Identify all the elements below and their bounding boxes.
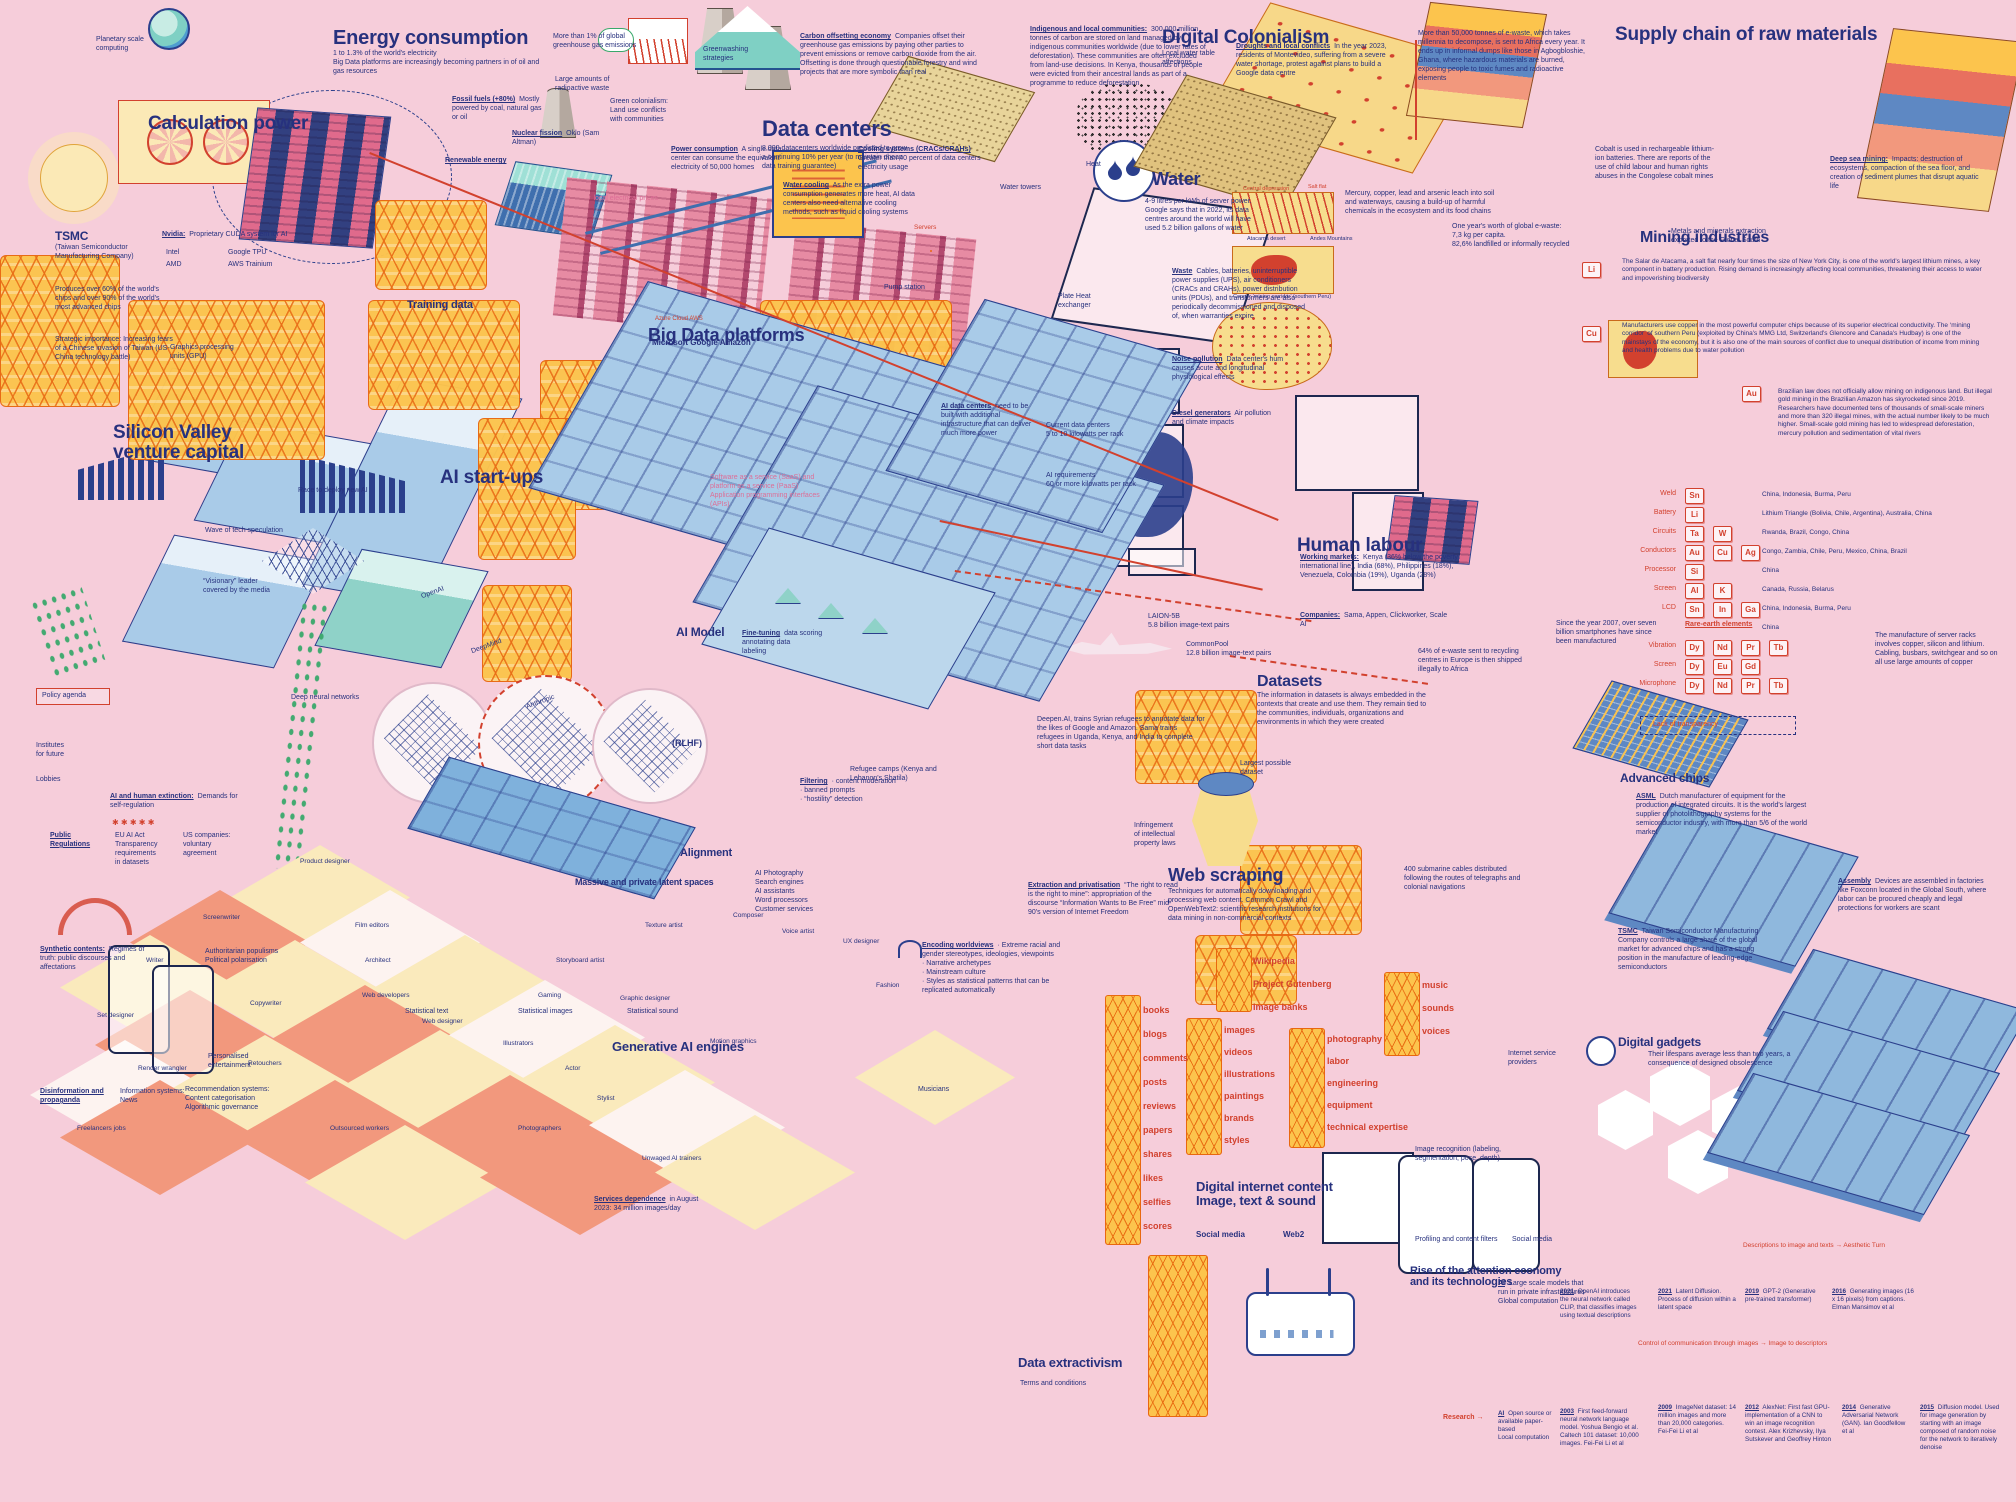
job-label: Web developers	[362, 992, 410, 999]
note-fossil-fuels: Fossil fuels (+80%) Mostly powered by co…	[452, 96, 547, 123]
scraped-audio-items: sounds	[1422, 1003, 1454, 1013]
note-water-towers: Water towers	[1000, 184, 1062, 193]
note-servers: Servers	[914, 224, 954, 232]
section-title-ai-model: AI Model	[676, 626, 724, 638]
phone-mockup	[1398, 1155, 1474, 1274]
timeline-2021-clip: 2021 OpenAI introduces the neural networ…	[1560, 1288, 1640, 1320]
timeline-2021-latent-diffusion: 2021 Latent Diffusion. Process of diffus…	[1658, 1288, 1736, 1312]
section-title-digital-internet-content: Digital internet content Image, text & s…	[1196, 1180, 1366, 1207]
note-water-table: Local water table affections	[1162, 50, 1242, 68]
note-datasets-body: The information in datasets is always em…	[1257, 692, 1429, 728]
element-chip: Tb	[1769, 678, 1788, 694]
job-label: Set designer	[97, 1012, 134, 1019]
map-label-mining-corridor: Copper ‘mining corridor’ (southern Peru)	[1233, 294, 1348, 301]
element-callout-chip: Cu	[1582, 326, 1601, 342]
ewaste-connector-line	[1415, 40, 1417, 140]
note-water-cooling: Water cooling As the extra power consump…	[783, 182, 921, 218]
note-policy-agenda: Policy agenda	[36, 688, 110, 705]
note-research-arrow: Research →	[1443, 1414, 1498, 1423]
section-title-data-centers: Data centers	[762, 118, 892, 141]
note-nuclear-fission: Nuclear fission Oklo (Sam Altman)	[512, 130, 607, 148]
job-label: Render wrangler	[138, 1065, 187, 1072]
note-rlhf: (RLHF)	[672, 738, 722, 750]
content-cube-column	[1384, 972, 1420, 1056]
label-statistical-images: Statistical images	[518, 1008, 600, 1017]
label-statistical-sound: Statistical sound	[627, 1008, 705, 1017]
section-title-data-extractivism: Data extractivism	[1018, 1356, 1122, 1370]
note-mercury: Mercury, copper, lead and arsenic leach …	[1345, 190, 1500, 217]
note-ip-infringement: Infringement of intellectual property la…	[1134, 822, 1216, 849]
scraped-audio-items: voices	[1422, 1026, 1450, 1036]
element-chip: In	[1713, 602, 1732, 618]
note-pump-station: Pump station	[884, 284, 944, 293]
note-radioactive: Large amounts of radioactive waste	[555, 76, 660, 94]
element-chip: Dy	[1685, 659, 1704, 675]
note-intel: Intel	[166, 249, 206, 258]
element-chip: Ga	[1741, 602, 1760, 618]
timeline-2003-bengio: 2003 First feed-forward neural network l…	[1560, 1408, 1642, 1448]
element-chip: Nd	[1713, 640, 1732, 656]
label-statistical-text: Statistical text	[405, 1008, 477, 1017]
training-data-cubes	[930, 250, 932, 252]
element-chip: Ta	[1685, 526, 1704, 542]
training-data-cubes	[368, 300, 520, 410]
training-data-cubes	[375, 200, 487, 290]
element-countries: Canada, Russia, Belarus	[1762, 586, 1997, 593]
note-commonpool: CommonPool 12.8 billion image-text pairs	[1186, 641, 1311, 659]
scraped-resource-items: technical expertise	[1327, 1122, 1408, 1132]
note-bdp-clouds: Azure Cloud AWS	[655, 316, 815, 324]
sun-worker-icon	[40, 144, 108, 212]
element-callout-chip: Li	[1582, 262, 1601, 278]
element-chip: Cu	[1713, 545, 1732, 561]
job-label: Screenwriter	[203, 914, 240, 921]
scraped-media-items: brands	[1224, 1113, 1254, 1123]
element-chip: Sn	[1685, 602, 1704, 618]
shark-illustration	[1062, 630, 1172, 664]
job-label: Product designer	[300, 858, 350, 865]
note-current-dc-kw: Current data centers 5 to 10 kilowatts p…	[1046, 422, 1154, 440]
rare-earth-label: Rare-earth elements	[1685, 621, 1752, 628]
note-disinformation: Disinformation and propaganda	[40, 1088, 120, 1106]
job-label: Graphic designer	[620, 995, 670, 1002]
scraped-text-items: papers	[1143, 1125, 1173, 1135]
note-wave-speculation: Wave of tech speculation	[205, 527, 330, 536]
job-label: Fashion	[876, 982, 899, 989]
scraped-source-items: Project Gutenberg	[1253, 979, 1332, 989]
job-label: Writer	[146, 957, 163, 964]
scraped-text-items: likes	[1143, 1173, 1163, 1183]
note-ai-services: AI Photography Search engines AI assista…	[755, 870, 855, 915]
element-countries: Rwanda, Brazil, Congo, China	[1762, 529, 1997, 536]
note-tsmc-right: TSMC Taiwan Semiconductor Manufacturing …	[1618, 928, 1776, 973]
note-deepen-ai: Deepen.AI, trains Syrian refugees to ann…	[1037, 716, 1205, 752]
element-chip: Tb	[1769, 640, 1788, 656]
note-renewable-energy: Renewable energy	[445, 157, 525, 166]
element-part-label: LCD	[1594, 604, 1676, 611]
section-title-alignment: Alignment	[680, 848, 732, 859]
note-gpu: Graphics processing units (GPU)	[170, 344, 280, 362]
label-social-media: Social media	[1196, 1230, 1258, 1240]
note-gadget-lifespans: Their lifespans average less than two ye…	[1648, 1051, 1826, 1069]
section-title-energy-consumption: Energy consumption	[333, 28, 528, 49]
job-label: Architect	[365, 957, 391, 964]
note-encoding-worldviews: Encoding worldviews · Extreme racial and…	[922, 942, 1062, 996]
job-label: Outsourced workers	[330, 1125, 389, 1132]
note-tsmc-chips: Produces over 60% of the world's chips a…	[55, 286, 170, 313]
element-chip: W	[1713, 526, 1732, 542]
note-extraction-privatisation: Extraction and privatisation “The right …	[1028, 882, 1180, 918]
exploded-monitor-sketch	[1295, 395, 1419, 491]
job-label: Unwaged AI trainers	[642, 1155, 701, 1162]
element-chip: Eu	[1713, 659, 1732, 675]
timeline-2019-gpt2: 2019 GPT-2 (Generative pre-trained trans…	[1745, 1288, 1821, 1304]
note-lithium: The Salar de Atacama, a salt flat nearly…	[1622, 258, 1990, 283]
scraped-audio-items: music	[1422, 980, 1448, 990]
section-title-latent-spaces: Massive and private latent spaces	[575, 878, 765, 887]
note-authoritarian: Authoritarian populisms Political polari…	[205, 948, 303, 966]
job-label: Photographers	[518, 1125, 561, 1132]
note-visionary-leader: “Visionary” leader covered by the media	[203, 578, 303, 596]
scraped-resource-items: engineering	[1327, 1078, 1378, 1088]
note-deep-neural-networks: Deep neural networks	[291, 694, 396, 703]
job-label: Copywriter	[250, 1000, 282, 1007]
element-chip: Sn	[1685, 488, 1704, 504]
note-ewaste-recycling: 64% of e-waste sent to recycling centres…	[1418, 648, 1540, 675]
note-deep-sea-mining: Deep sea mining: Impacts: destruction of…	[1830, 156, 1985, 192]
scraped-resource-items: photography	[1327, 1034, 1382, 1044]
element-chip: Pr	[1741, 678, 1760, 694]
note-ai-kw: AI requirements 60 or more kilowatts per…	[1046, 472, 1158, 490]
element-chip: Nd	[1713, 678, 1732, 694]
note-information-systems: Information systems: News	[120, 1088, 195, 1106]
timeline-2012-alexnet: 2012 AlexNet: First fast GPU-implementat…	[1745, 1404, 1831, 1444]
note-largest-dataset: Largest possible dataset	[1240, 760, 1320, 778]
note-race-to-deploy: Race to deploy new AI	[298, 487, 408, 496]
content-cube-column	[1289, 1028, 1325, 1148]
element-part-label: Battery	[1594, 509, 1676, 516]
extractivism-cube-column	[1148, 1255, 1208, 1417]
phone-mockup	[1472, 1158, 1540, 1272]
note-social-media-right: Social media	[1512, 1236, 1574, 1245]
note-cooling-systems: Cooling systems (CRACs/CRAHs) Greater th…	[858, 146, 988, 173]
note-heat: Heat	[1086, 161, 1116, 170]
element-part-label: Weld	[1594, 490, 1676, 497]
element-part-label: Circuits	[1594, 528, 1676, 535]
note-carbon-offsetting: Carbon offsetting economy Companies offs…	[800, 33, 980, 78]
element-part-label: Processor	[1594, 566, 1676, 573]
musician-stage-tile	[855, 1030, 1015, 1125]
note-droughts: Droughts and local conflicts In the year…	[1236, 43, 1391, 79]
note-planetary-scale-computing: Planetary scale computing	[96, 36, 178, 54]
note-electrical-prices: ↑ local electrical prices	[588, 195, 683, 204]
timeline-2014-gan: 2014 Generative Adversarial Network (GAN…	[1842, 1404, 1912, 1436]
section-title-advanced-chips: Advanced chips	[1620, 772, 1709, 784]
note-lobbies: Lobbies	[36, 776, 86, 785]
note-power-consumption: Power consumption A single data center c…	[671, 146, 783, 173]
note-terms-conditions: Terms and conditions	[1020, 1380, 1115, 1389]
scraped-text-items: blogs	[1143, 1029, 1167, 1039]
scraped-resource-items: labor	[1327, 1056, 1349, 1066]
clock-icon	[1586, 1036, 1616, 1066]
note-public-regulations: Public Regulations	[50, 832, 110, 850]
note-gold: Brazilian law does not officially allow …	[1778, 388, 1993, 438]
element-countries: Congo, Zambia, Chile, Peru, Mexico, Chin…	[1762, 548, 1997, 555]
job-label: Retouchers	[248, 1060, 282, 1067]
regulation-arc-icon	[58, 898, 132, 935]
phone-mockup	[152, 965, 214, 1074]
content-cube-column	[1216, 948, 1252, 1012]
element-chip: K	[1713, 583, 1732, 599]
section-title-ai-startups: AI start-ups	[440, 468, 543, 488]
section-title-human-labour: Human labour	[1297, 536, 1422, 556]
timeline-ai-open-source: AI Open source or available paper-based …	[1498, 1410, 1556, 1442]
section-title-calculation-power: Calculation power	[148, 114, 308, 134]
note-asml: ASML Dutch manufacturer of equipment for…	[1636, 793, 1808, 838]
scraped-media-items: styles	[1224, 1135, 1250, 1145]
tent-icon	[818, 603, 844, 618]
note-copper: Manufacturers use copper in the most pow…	[1622, 322, 1990, 355]
scraped-media-items: paintings	[1224, 1091, 1264, 1101]
scraped-text-items: scores	[1143, 1221, 1172, 1231]
timeline-2009-imagenet: 2009 ImageNet dataset: 14 million images…	[1658, 1404, 1736, 1436]
note-cobalt: Cobalt is used in rechargeable lithium-i…	[1595, 146, 1717, 182]
element-part-label: Screen	[1594, 585, 1676, 592]
element-part-label: Microphone	[1594, 680, 1676, 687]
label-web2: Web2	[1283, 1230, 1323, 1240]
element-chip: Dy	[1685, 678, 1704, 694]
gadget-podium-cube	[1598, 1090, 1653, 1150]
map-label-andes: Andes Mountains	[1310, 236, 1372, 243]
note-labour-companies: Companies: Sama, Appen, Clickworker, Sca…	[1300, 612, 1450, 630]
note-ai-human-extinction: AI and human extinction: Demands for sel…	[110, 793, 240, 811]
note-saas: Software as a service (SaaS) and platfor…	[710, 474, 832, 510]
timeline-2016-captions: 2016 Generating images (16 x 16 pixels) …	[1832, 1288, 1914, 1312]
note-services-dependence: Services dependence in August 2023: 34 m…	[594, 1196, 706, 1214]
element-part-label: Screen	[1594, 661, 1676, 668]
job-label: Motion graphics	[710, 1038, 757, 1045]
job-label: Stylist	[597, 1095, 615, 1102]
content-cube-column	[1105, 995, 1141, 1245]
job-label: Web designer	[422, 1018, 463, 1025]
note-lack-of-transparency: Lack of transparency	[1640, 716, 1796, 735]
scraped-resource-items: equipment	[1327, 1100, 1373, 1110]
note-institutes-future: Institutes for future	[36, 742, 106, 760]
job-label: Illustrators	[503, 1040, 533, 1047]
scraped-text-items: comments	[1143, 1053, 1188, 1063]
note-plate-heat-exchanger: Plate Heat exchanger	[1058, 293, 1120, 311]
content-cube-column	[1186, 1018, 1222, 1155]
tent-icon	[862, 618, 888, 633]
job-label: Voice artist	[782, 928, 814, 935]
element-countries: China, Indonesia, Burma, Peru	[1762, 491, 1997, 498]
note-refugee-camps: Refugee camps (Kenya and Lebanon's Shati…	[850, 766, 942, 784]
note-eu-ai-act: EU AI Act Transparency requirements in d…	[115, 832, 185, 868]
note-google-tpu: Google TPU	[228, 249, 298, 258]
map-label-salt-flat: Salt flat	[1308, 184, 1342, 191]
element-chip: Gd	[1741, 659, 1760, 675]
note-web-scraping-body: Techniques for automatically downloading…	[1168, 888, 1326, 924]
note-green-colonialism: Green colonialism: Land use conflicts wi…	[610, 98, 705, 125]
element-chip: Dy	[1685, 640, 1704, 656]
note-diesel-generators: Diesel generators Air pollution and clim…	[1172, 410, 1277, 428]
label-musicians: Musicians	[918, 1086, 978, 1095]
map-label-atacama: Atacama desert	[1247, 236, 1307, 243]
scraped-text-items: posts	[1143, 1077, 1167, 1087]
element-chip: Si	[1685, 564, 1704, 580]
section-title-water: Water	[1152, 170, 1200, 189]
element-countries: China	[1762, 624, 1997, 631]
note-image-descriptors: Control of communication through images …	[1638, 1340, 1848, 1348]
note-nvidia: Nvidia: Proprietary CUDA system for AI	[162, 231, 322, 240]
scraped-text-items: books	[1143, 1005, 1170, 1015]
gadget-podium-cube	[1650, 1060, 1710, 1126]
job-label: Gaming	[538, 992, 561, 999]
wifi-router-illustration	[1246, 1292, 1355, 1356]
element-countries: Lithium Triangle (Bolivia, Chile, Argent…	[1762, 510, 1997, 517]
note-greenwashing: Greenwashing strategies	[703, 46, 773, 64]
job-label: Freelancers jobs	[77, 1125, 126, 1132]
note-bdp-companies: Microsoft Google Amazon	[652, 338, 842, 348]
note-extinction-asterisks: ✱ ✱ ✱ ✱ ✱	[112, 818, 182, 828]
infographic-poster: Energy consumptionCalculation powerData …	[0, 0, 2016, 1502]
money-bills	[28, 584, 107, 682]
section-title-silicon-valley: Silicon Valley venture capital	[113, 423, 303, 463]
note-profiling: Profiling and content filters	[1415, 1236, 1507, 1245]
job-label: Texture artist	[645, 922, 683, 929]
note-ewaste-africa: More than 50,000 tonnes of e-waste, whic…	[1418, 30, 1593, 84]
note-metals-export: Metals and minerals extraction exported …	[1671, 228, 1806, 246]
scraped-media-items: illustrations	[1224, 1069, 1275, 1079]
section-title-supply-chain: Supply chain of raw materials	[1615, 25, 1895, 45]
note-working-markets: Working markets: Kenya (36% below the po…	[1300, 554, 1465, 581]
note-isp: Internet service providers	[1508, 1050, 1590, 1068]
note-aesthetic-turn: Descriptions to image and texts → Aesthe…	[1743, 1242, 1888, 1250]
note-laion: LAION-5B 5.8 billion image-text pairs	[1148, 613, 1260, 631]
element-countries: China, Indonesia, Burma, Peru	[1762, 605, 1997, 612]
note-synthetic-contents: Synthetic contents: Regimes of truth: pu…	[40, 946, 148, 973]
note-noise-pollution: Noise pollution Data center's hum causes…	[1172, 356, 1284, 383]
element-callout-chip: Au	[1742, 386, 1761, 402]
scraped-source-items: Image banks	[1253, 1002, 1308, 1012]
note-amd: AMD	[166, 261, 206, 270]
element-chip: Pr	[1741, 640, 1760, 656]
element-part-label: Vibration	[1594, 642, 1676, 649]
headphones-icon	[898, 940, 922, 958]
note-recommendation: Recommendation systems: Content categori…	[185, 1086, 285, 1113]
scraped-media-items: images	[1224, 1025, 1255, 1035]
element-chip: Al	[1685, 583, 1704, 599]
note-submarine-cables: 400 submarine cables distributed followi…	[1404, 866, 1526, 893]
note-ewaste-per-capita: One year's worth of global e-waste: 7,3 …	[1452, 223, 1622, 250]
note-image-recognition: Image recognition (labeling, segmentatio…	[1415, 1146, 1537, 1164]
section-title-digital-gadgets: Digital gadgets	[1618, 1036, 1701, 1048]
label-training-data: Training data	[407, 300, 473, 311]
element-chip: Au	[1685, 545, 1704, 561]
note-tsmc-fullname: (Taiwan Semiconductor Manufacturing Comp…	[55, 244, 165, 262]
section-title-tsmc: TSMC	[55, 230, 88, 242]
timeline-2015-diffusion: 2015 Diffusion model. Used for image gen…	[1920, 1404, 2002, 1452]
section-title-datasets: Datasets	[1257, 674, 1322, 691]
note-us-companies: US companies: voluntary agreement	[183, 832, 255, 859]
scraped-media-items: videos	[1224, 1047, 1253, 1057]
job-label: Composer	[733, 912, 763, 919]
note-fine-tuning: Fine-tuning data scoring annotating data…	[742, 630, 837, 657]
note-ghg: More than 1% of global greenhouse gas em…	[553, 33, 668, 51]
scraped-source-items: Wikipedia	[1253, 956, 1295, 966]
note-aws-trainium: AWS Trainium	[228, 261, 308, 270]
job-label: Storyboard artist	[556, 957, 604, 964]
note-tsmc-strategic: Strategic importance: Increasing fears o…	[55, 336, 173, 363]
note-water-litres: 4-9 litres per kWh of server power. Goog…	[1145, 198, 1263, 234]
element-part-label: Conductors	[1594, 547, 1676, 554]
element-chip: Ag	[1741, 545, 1760, 561]
job-label: Actor	[565, 1065, 580, 1072]
note-energy-subtitle: 1 to 1.3% of the world's electricity Big…	[333, 50, 548, 77]
scraped-text-items: selfies	[1143, 1197, 1171, 1207]
job-label: UX designer	[843, 938, 879, 945]
map-label-central-depression: Central depression	[1243, 186, 1305, 193]
scraped-text-items: shares	[1143, 1149, 1172, 1159]
element-countries: China	[1762, 567, 1997, 574]
section-title-web-scraping: Web scraping	[1168, 866, 1283, 885]
note-server-racks-copper: The manufacture of server racks involves…	[1875, 632, 2000, 668]
element-chip: Li	[1685, 507, 1704, 523]
job-label: Film editors	[355, 922, 389, 929]
scraped-text-items: reviews	[1143, 1101, 1176, 1111]
note-assembly: Assembly Devices are assembled in factor…	[1838, 878, 1990, 914]
tent-icon	[775, 588, 801, 603]
training-data-cubes	[0, 255, 120, 407]
note-ai-datacenters: AI data centers need to be built with ad…	[941, 403, 1041, 439]
